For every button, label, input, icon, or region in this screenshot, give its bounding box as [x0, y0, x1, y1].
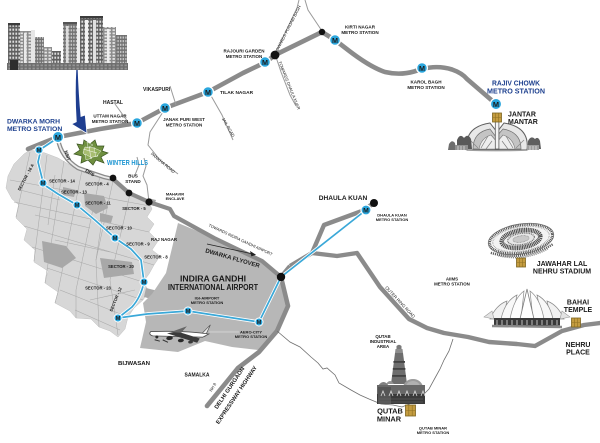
- svg-text:NEHRU STADIUM: NEHRU STADIUM: [533, 269, 591, 276]
- svg-text:SECTOR - 11: SECTOR - 11: [85, 201, 111, 206]
- svg-text:M: M: [205, 88, 211, 97]
- svg-text:M: M: [257, 320, 262, 326]
- svg-text:VIKASPURI: VIKASPURI: [143, 87, 171, 93]
- svg-text:TEMPLE: TEMPLE: [564, 307, 593, 314]
- svg-text:RAJ NAGAR: RAJ NAGAR: [151, 237, 178, 242]
- svg-text:M: M: [113, 236, 118, 242]
- svg-text:UTTAM NAGAR: UTTAM NAGAR: [93, 114, 127, 119]
- svg-text:M: M: [55, 133, 61, 142]
- svg-text:SECTOR - 8: SECTOR - 8: [144, 255, 168, 260]
- svg-text:M: M: [186, 309, 191, 315]
- svg-text:TILAK NAGAR: TILAK NAGAR: [220, 90, 254, 96]
- svg-text:SECTOR - 13: SECTOR - 13: [61, 190, 87, 195]
- svg-text:JANAK PURI WEST: JANAK PURI WEST: [163, 117, 205, 122]
- svg-text:M: M: [493, 100, 499, 109]
- svg-text:SECTOR - 4: SECTOR - 4: [85, 182, 109, 187]
- svg-text:M: M: [142, 280, 147, 286]
- svg-text:PLACE: PLACE: [566, 350, 590, 357]
- svg-text:RAJOURI GARDEN: RAJOURI GARDEN: [223, 49, 264, 54]
- svg-text:SECTOR - 14: SECTOR - 14: [49, 179, 75, 184]
- svg-text:METRO STATION: METRO STATION: [417, 430, 450, 435]
- svg-text:METRO STATION: METRO STATION: [434, 282, 470, 287]
- svg-text:METRO STATION: METRO STATION: [166, 122, 203, 127]
- svg-text:SECTOR - 20: SECTOR - 20: [108, 264, 134, 269]
- svg-text:M: M: [116, 316, 121, 322]
- svg-text:SECTOR - 9: SECTOR - 9: [126, 242, 150, 247]
- svg-text:SECTOR - 23: SECTOR - 23: [85, 286, 111, 291]
- svg-text:M: M: [37, 148, 42, 154]
- svg-text:ENCLAVE: ENCLAVE: [166, 196, 185, 201]
- svg-text:DWARKA MORH: DWARKA MORH: [7, 118, 60, 125]
- svg-text:DHAULA KUAN: DHAULA KUAN: [319, 195, 368, 202]
- svg-text:M: M: [41, 181, 46, 187]
- svg-text:MANTAR: MANTAR: [508, 119, 538, 126]
- svg-text:METRO STATION: METRO STATION: [376, 217, 409, 222]
- svg-text:WINTER HILLS: WINTER HILLS: [107, 158, 148, 167]
- svg-text:METRO STATION: METRO STATION: [92, 119, 129, 124]
- svg-text:METRO STATION: METRO STATION: [191, 300, 224, 305]
- svg-text:M: M: [134, 119, 140, 128]
- svg-text:SECTOR - 5: SECTOR - 5: [122, 206, 146, 211]
- svg-text:JAWAHAR LAL: JAWAHAR LAL: [537, 261, 588, 268]
- svg-text:METRO STATION: METRO STATION: [341, 30, 379, 35]
- svg-text:M: M: [75, 203, 80, 209]
- svg-text:BIJWASAN: BIJWASAN: [118, 361, 150, 367]
- svg-text:BAHAI: BAHAI: [567, 300, 589, 307]
- svg-text:INTERNATIONAL AIRPORT: INTERNATIONAL AIRPORT: [168, 283, 258, 292]
- svg-text:AREA: AREA: [377, 344, 390, 349]
- svg-text:SECTOR - 10: SECTOR - 10: [106, 226, 132, 231]
- svg-text:METRO STATION: METRO STATION: [407, 85, 445, 90]
- svg-text:M: M: [419, 64, 425, 73]
- svg-text:METRO STATION: METRO STATION: [487, 86, 545, 95]
- svg-text:M: M: [262, 58, 268, 67]
- svg-text:M: M: [162, 104, 168, 113]
- svg-text:METRO STATION: METRO STATION: [7, 126, 62, 133]
- svg-text:METRO STATION: METRO STATION: [235, 334, 268, 339]
- svg-text:HASTAL: HASTAL: [103, 100, 123, 106]
- svg-text:MINAR: MINAR: [377, 414, 402, 423]
- svg-text:SAMALKA: SAMALKA: [185, 373, 210, 379]
- svg-text:M: M: [363, 207, 369, 214]
- svg-text:M: M: [332, 36, 338, 45]
- svg-text:METRO STATION: METRO STATION: [226, 54, 263, 59]
- svg-text:STAND: STAND: [125, 179, 141, 184]
- svg-text:NEHRU: NEHRU: [566, 342, 591, 349]
- svg-text:JANTAR: JANTAR: [508, 112, 536, 119]
